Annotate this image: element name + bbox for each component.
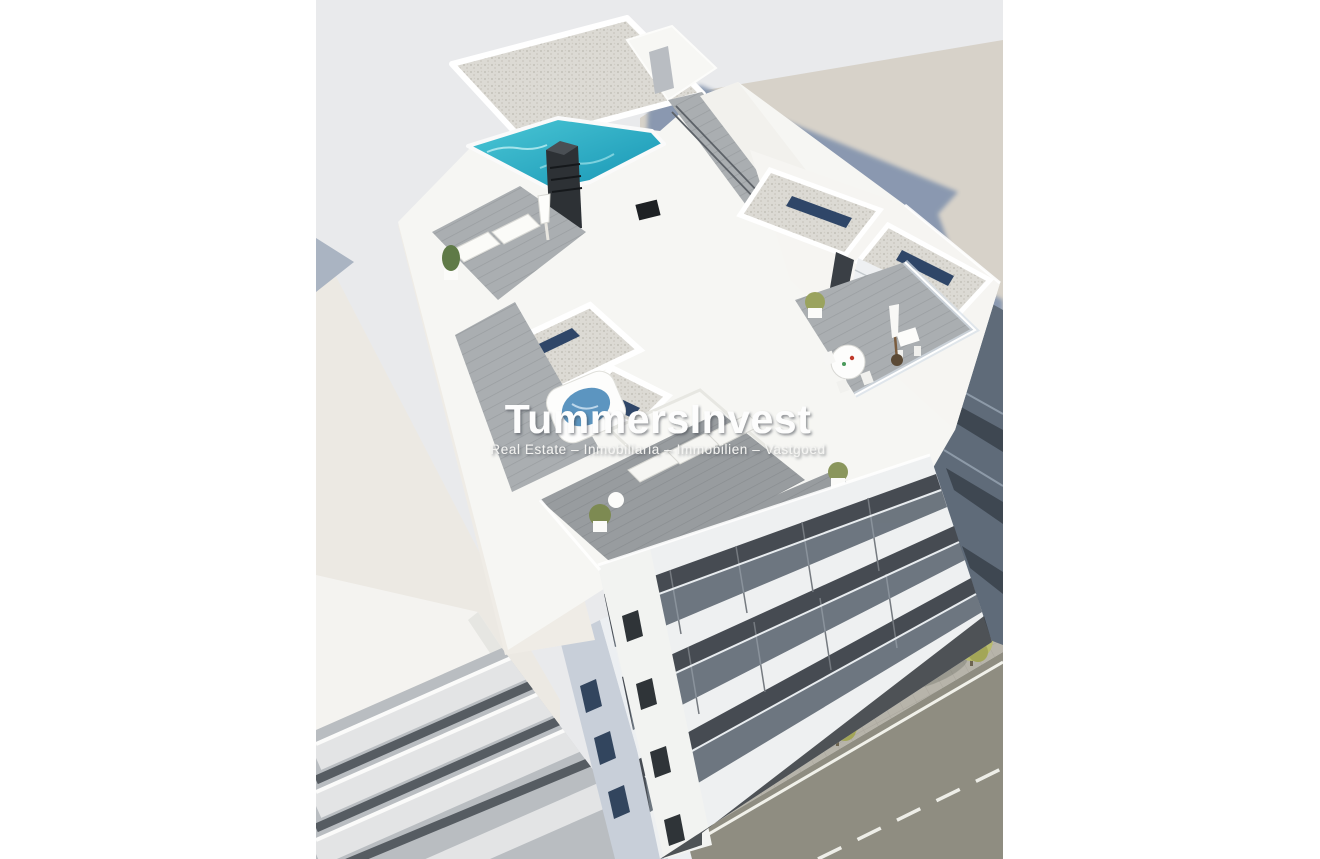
cypress-planter (442, 245, 460, 280)
watermark-tagline: Real Estate – Inmobiliaria – Immobilien … (490, 442, 825, 457)
watermark-brand: TummersInvest (505, 396, 812, 442)
watermark: TummersInvest Real Estate – Inmobiliaria… (490, 396, 825, 457)
planter (805, 292, 825, 318)
building-render-scene: TummersInvest Real Estate – Inmobiliaria… (0, 0, 1320, 859)
architectural-render-page: TummersInvest Real Estate – Inmobiliaria… (0, 0, 1320, 859)
side-table (608, 492, 624, 508)
